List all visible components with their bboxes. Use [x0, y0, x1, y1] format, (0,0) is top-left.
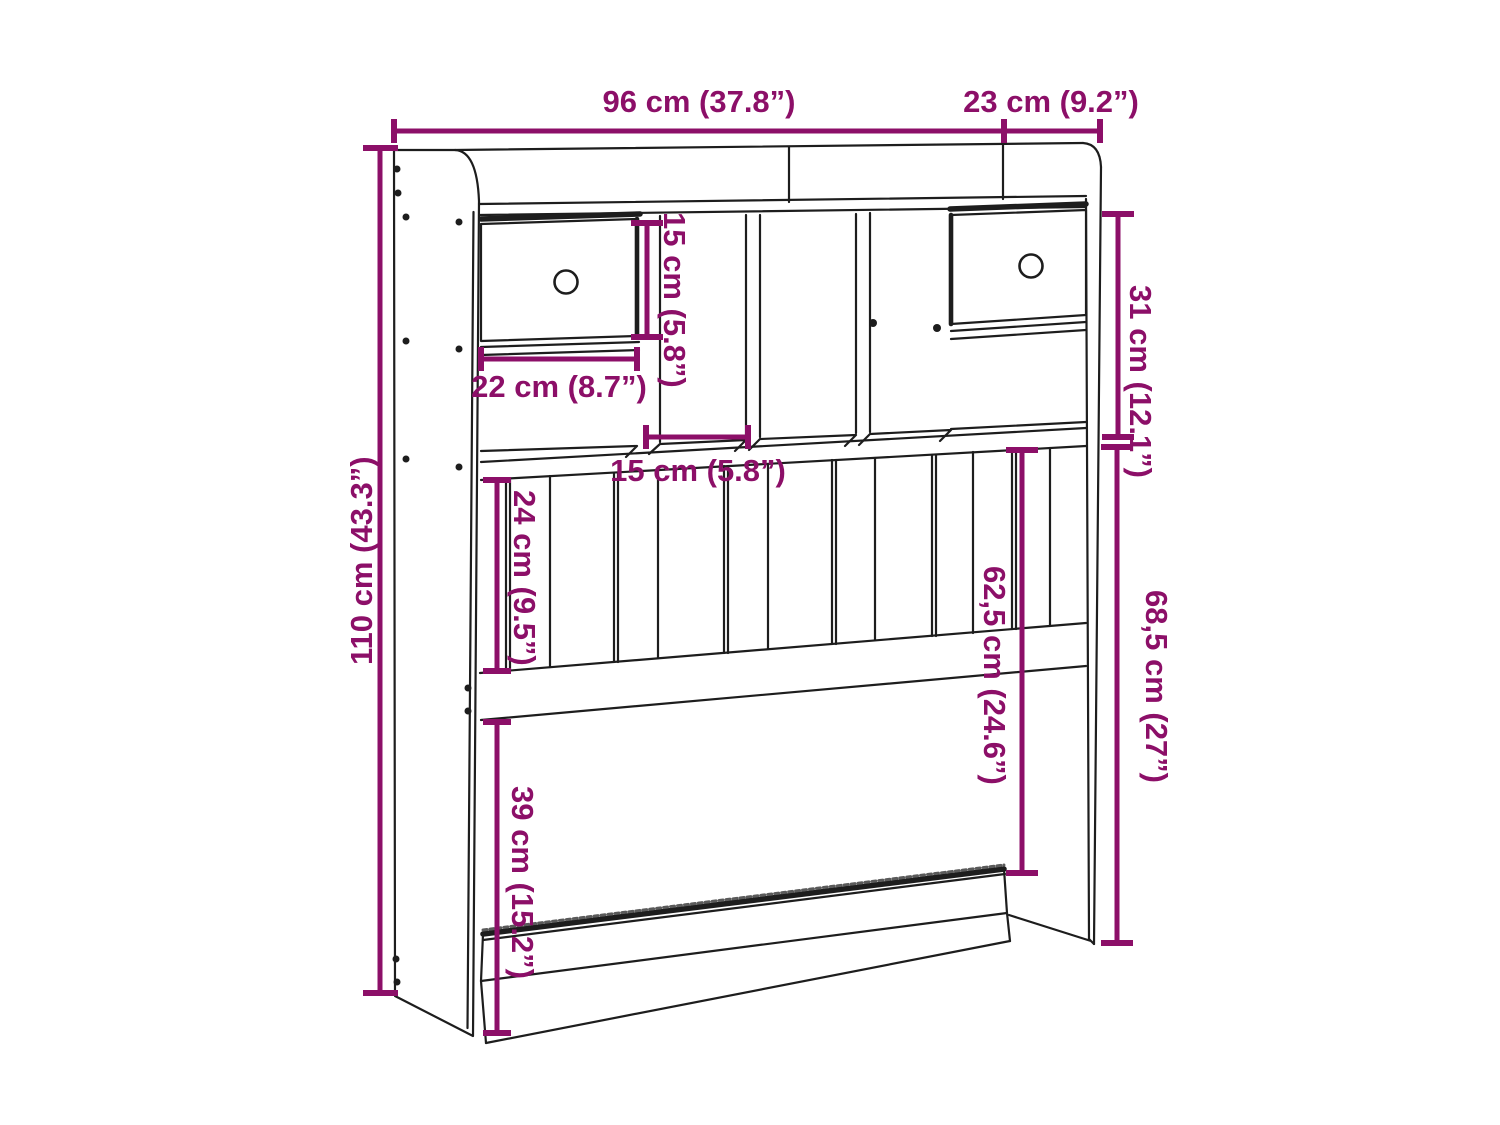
dim-compartment-height: 15 cm (5.8”)	[657, 212, 692, 388]
shelf-pin-hole	[933, 324, 941, 332]
divider-1	[746, 215, 760, 439]
top-board-front-edge	[479, 196, 1086, 204]
dim-shelf-to-rail: 62,5 cm (24.6”)	[977, 566, 1012, 785]
left-side-panel	[394, 150, 479, 1036]
crossbar-top-inner	[483, 874, 1005, 940]
dim-lower-section: 68,5 cm (27”)	[1139, 590, 1174, 783]
headboard-dimension-diagram: 96 cm (37.8”) 23 cm (9.2”) 110 cm (43.3”…	[0, 0, 1500, 1125]
dim-total-height: 110 cm (43.3”)	[344, 456, 379, 665]
right-panel-bottom	[1009, 915, 1094, 944]
dim-compartment-width: 15 cm (5.8”)	[610, 453, 786, 488]
left-drawer-front	[481, 219, 637, 341]
diagram-canvas: 96 cm (37.8”) 23 cm (9.2”) 110 cm (43.3”…	[0, 0, 1500, 1125]
dim-lower-clearance: 39 cm (15.2”)	[505, 786, 540, 979]
divider-2	[856, 213, 870, 433]
top-right-corner	[1083, 143, 1101, 167]
dim-total-depth: 23 cm (9.2”)	[963, 84, 1139, 119]
right-drawer-subshelf	[951, 322, 1086, 339]
left-drawer-subshelf	[481, 342, 639, 355]
top-board-back-edge	[455, 143, 1083, 150]
top-surface-joint-lines	[789, 144, 1003, 202]
shelf-pin-hole	[869, 319, 877, 327]
right-panel-outer-edge	[1094, 167, 1101, 944]
dim-total-width: 96 cm (37.8”)	[603, 84, 796, 119]
crossbar-bottom	[486, 941, 1010, 1043]
crossbar-right-end	[1004, 869, 1010, 941]
crossbar-left-end	[481, 934, 486, 1043]
dim-slat-height: 24 cm (9.5”)	[507, 490, 542, 666]
dim-drawer-width: 22 cm (8.7”)	[471, 369, 647, 404]
crossbar-hatch	[483, 865, 1004, 930]
